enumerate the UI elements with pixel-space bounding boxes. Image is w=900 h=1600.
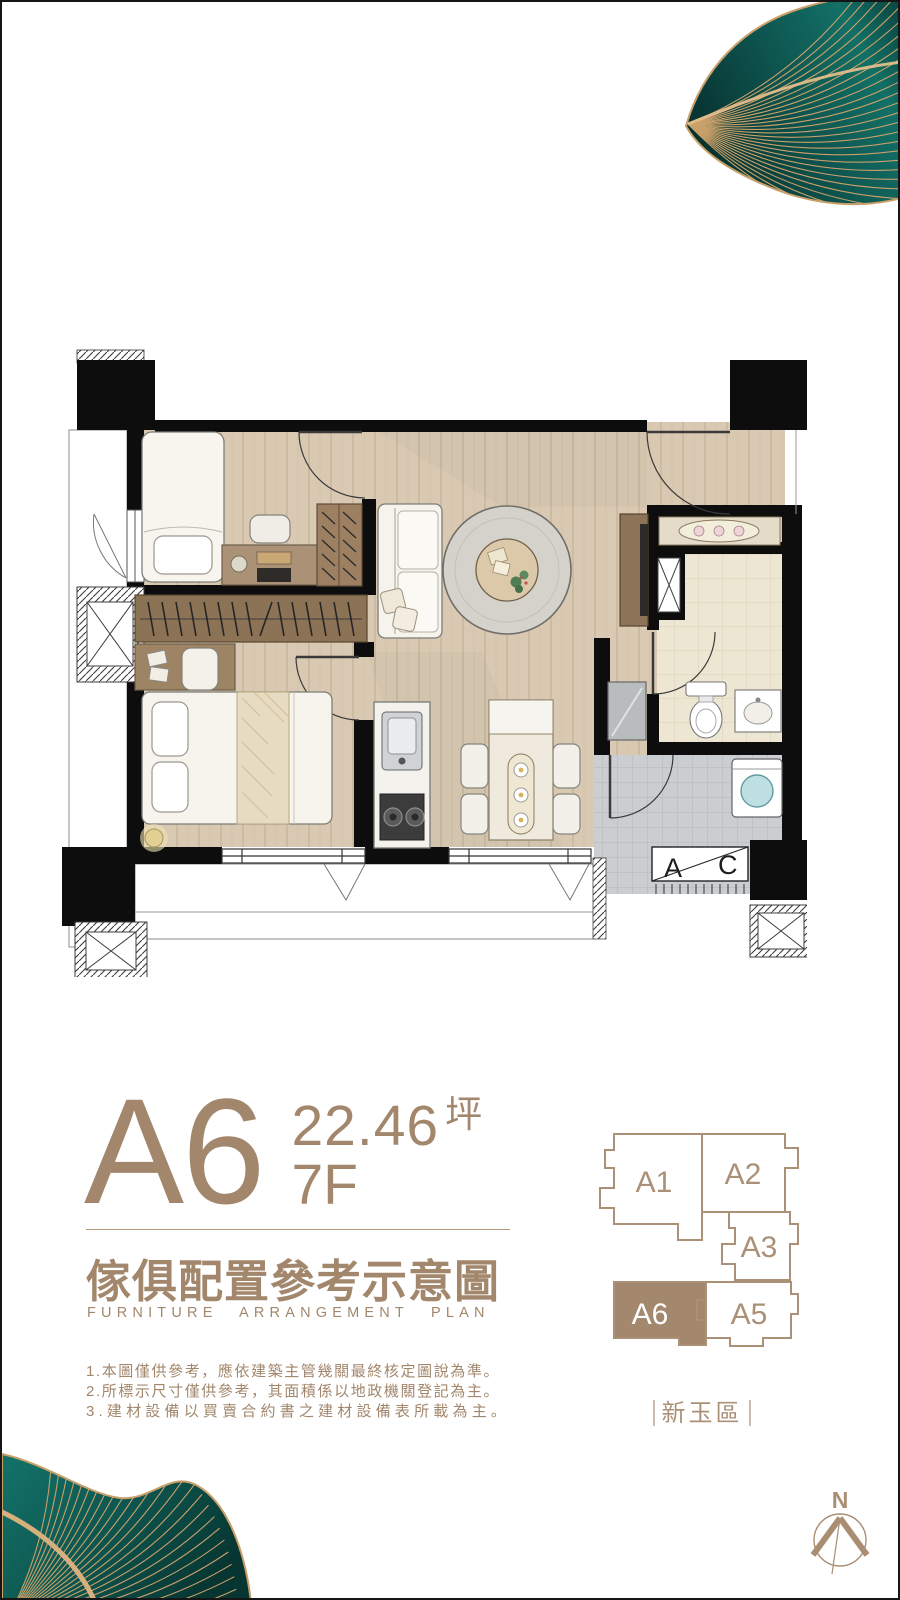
vanity-desk-icon [135,644,235,690]
kitchen-counter-icon [374,702,430,848]
single-bed-icon [142,432,224,582]
district-name: 新玉區 [662,1400,743,1427]
floor-lamp-icon [140,824,168,852]
keyplan-label-a3: A3 [741,1231,778,1264]
desk-chair-icon [250,515,290,543]
leaf-body [2,1454,251,1600]
wardrobe-icon [317,504,362,586]
advert-page: A C A6 22.46坪 7F 傢俱配置參考示意圖 FURNITURE ARR… [0,0,900,1600]
basin-icon [735,690,781,732]
vanity-counter-icon [659,517,780,545]
pipe-shaft [653,550,685,620]
keyplan-label-a1: A1 [636,1166,673,1199]
compass-north-label: N [832,1487,849,1513]
plan-title-en: FURNITURE ARRANGEMENT PLAN [87,1305,490,1321]
unit-floor: 7F [291,1157,482,1214]
compass-needle [813,1518,867,1555]
leaf-decoration-top-right [657,2,900,217]
ac-label-left: A [664,853,682,883]
divider-line [86,1229,510,1230]
leaf-decoration-bottom-left [2,1440,254,1600]
washing-machine-icon [732,759,782,817]
exterior-hatch-strip [593,858,606,939]
open-closet-icon [135,595,367,642]
unit-area-unit: 坪 [445,1094,482,1135]
note-line: 2.所標示尺寸僅供參考，其面積係以地政機關登記為主。 [86,1382,520,1402]
unit-info: A6 22.46坪 7F [84,1082,482,1220]
note-line: 1.本圖僅供參考，應依建築主管幾關最終核定圖說為準。 [86,1362,520,1382]
double-bed-icon [142,692,332,824]
vanity-chair-icon [182,648,218,690]
hall-cabinet-icon [608,682,646,740]
disclaimer-notes: 1.本圖僅供參考，應依建築主管幾關最終核定圖說為準。 2.所標示尺寸僅供參考，其… [86,1362,520,1422]
coffee-table-icon [476,539,538,601]
compass: N [790,1480,900,1595]
sofa-icon [378,504,442,638]
unit-area: 22.46坪 [291,1096,482,1155]
unit-code: A6 [84,1082,263,1220]
balcony [135,864,595,939]
district-label: 新玉區 [654,1400,750,1427]
key-plan: A1 A2 A3 A6 A5 新玉區 [590,1120,805,1435]
unit-area-value: 22.46 [291,1094,439,1158]
ac-label-right: C [718,850,738,880]
floor-plan: A C [62,327,807,977]
keyplan-label-a2: A2 [725,1158,762,1191]
tv-console-icon [620,514,648,626]
keyplan-label-a5: A5 [731,1298,768,1331]
keyplan-label-a6: A6 [632,1298,669,1331]
note-line: 3.建材設備以買賣合約書之建材設備表所載為主。 [86,1402,520,1422]
unit-meta: 22.46坪 7F [291,1096,482,1214]
plan-title-zh: 傢俱配置參考示意圖 [86,1245,526,1310]
